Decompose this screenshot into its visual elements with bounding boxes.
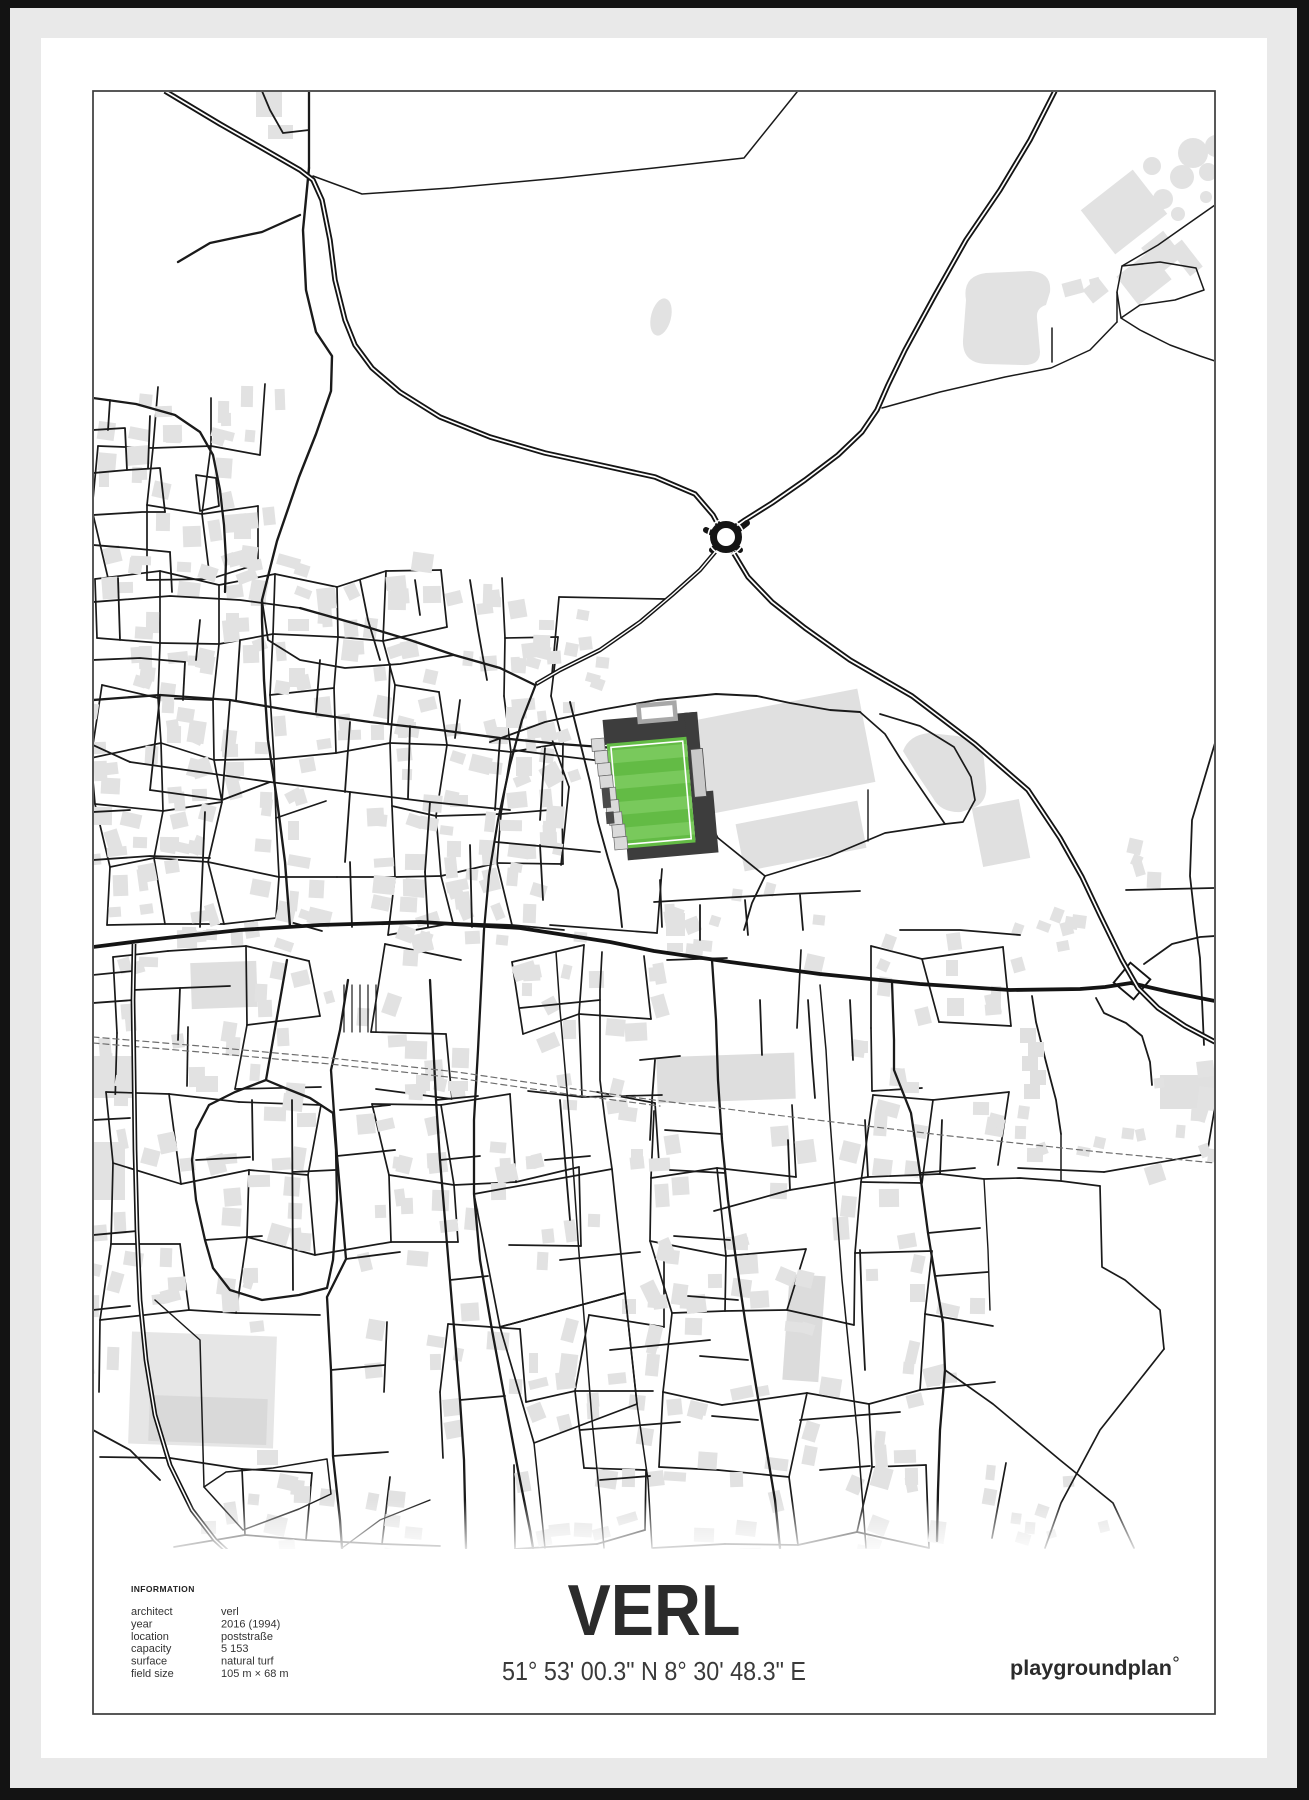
svg-text:surface: surface bbox=[131, 1656, 167, 1668]
svg-text:verl: verl bbox=[221, 1606, 239, 1618]
svg-text:5 153: 5 153 bbox=[221, 1643, 249, 1655]
svg-text:capacity: capacity bbox=[131, 1643, 172, 1655]
svg-text:field size: field size bbox=[131, 1668, 174, 1680]
svg-text:year: year bbox=[131, 1618, 153, 1630]
svg-text:105 m × 68 m: 105 m × 68 m bbox=[221, 1668, 289, 1680]
svg-text:location: location bbox=[131, 1631, 169, 1643]
svg-text:architect: architect bbox=[131, 1606, 173, 1618]
svg-text:poststraße: poststraße bbox=[221, 1631, 273, 1643]
svg-text:51° 53' 00.3" N 8° 30' 48.3" E: 51° 53' 00.3" N 8° 30' 48.3" E bbox=[502, 1656, 806, 1686]
svg-text:playgroundplan: playgroundplan bbox=[1010, 1656, 1172, 1680]
svg-text:2016 (1994): 2016 (1994) bbox=[221, 1618, 280, 1630]
svg-text:natural turf: natural turf bbox=[221, 1656, 275, 1668]
svg-text:VERL: VERL bbox=[568, 1571, 741, 1651]
svg-text:INFORMATION: INFORMATION bbox=[131, 1584, 195, 1594]
